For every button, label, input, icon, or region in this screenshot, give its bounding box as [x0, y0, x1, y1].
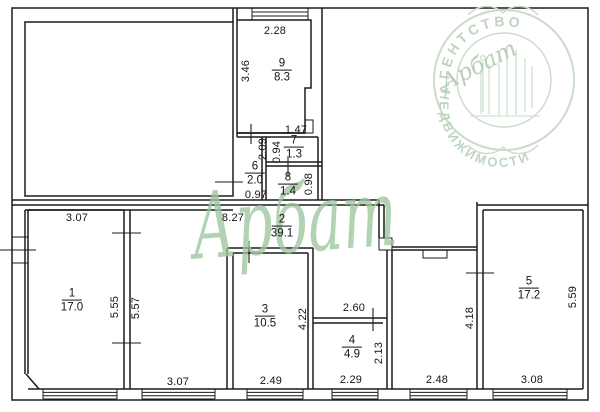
- dim-room3-depth: 4.22: [297, 308, 309, 330]
- dim-room1-width: 3.07: [66, 212, 88, 224]
- room-2-area: 39.1: [271, 227, 293, 240]
- room-6-area: 2.0: [245, 174, 265, 187]
- room-2-label: 2 39.1: [271, 214, 293, 241]
- logo-bottom-text: НЕДВИЖИМОСТИ: [437, 89, 534, 170]
- room-5-label: 5 17.2: [518, 276, 540, 303]
- room-2-number: 2: [272, 214, 292, 227]
- room-5-number: 5: [519, 276, 539, 289]
- room-8-number: 8: [278, 172, 298, 185]
- dim-hall-width: 3.07: [167, 376, 189, 388]
- dim-room6-width: 0.97: [245, 189, 267, 201]
- dim-room3-width: 2.49: [260, 375, 282, 387]
- dim-room7-width: 1.47: [285, 124, 307, 136]
- room-3-area: 10.5: [254, 317, 276, 330]
- room-8-area: 1.4: [278, 185, 298, 198]
- room-8-label: 8 1.4: [278, 172, 298, 199]
- dim-room1-depth: 5.55: [109, 296, 121, 318]
- dim-room5-width: 3.08: [521, 374, 543, 386]
- room-9-number: 9: [272, 58, 292, 71]
- room-4-label: 4 4.9: [342, 335, 362, 362]
- dim-passage-depth: 4.18: [464, 307, 476, 329]
- room-7-area: 1.3: [284, 148, 304, 161]
- room-3-label: 3 10.5: [254, 304, 276, 331]
- room-4-number: 4: [342, 335, 362, 348]
- dim-hall-depth: 5.57: [130, 297, 142, 319]
- room-6-label: 6 2.0: [245, 161, 265, 188]
- room-1-label: 1 17.0: [61, 288, 83, 315]
- room-3-number: 3: [255, 304, 275, 317]
- dim-room7-depth: 0.94: [271, 141, 283, 163]
- dim-room9-width: 2.28: [264, 25, 286, 37]
- floor-plan-drawing: АГЕНТСТВО НЕДВИЖИМОСТИ Арбат Арбат: [0, 0, 600, 412]
- dim-room9-depth: 3.46: [240, 60, 252, 82]
- room-7-number: 7: [284, 135, 304, 148]
- room-6-number: 6: [245, 161, 265, 174]
- room-7-label: 7 1.3: [284, 135, 304, 162]
- dim-room4-top-width: 2.60: [343, 302, 365, 314]
- room-4-area: 4.9: [342, 348, 362, 361]
- dim-passage-width: 2.48: [426, 374, 448, 386]
- dim-room4-width: 2.29: [340, 374, 362, 386]
- room-9-area: 8.3: [272, 71, 292, 84]
- room-1-number: 1: [62, 288, 82, 301]
- room-5-area: 17.2: [518, 289, 540, 302]
- dim-corridor-length: 8.27: [222, 212, 244, 224]
- dim-room8-depth: 0.98: [303, 173, 315, 195]
- floor-plan: АГЕНТСТВО НЕДВИЖИМОСТИ Арбат Арбат 9 8.3…: [0, 0, 600, 412]
- room-1-area: 17.0: [61, 301, 83, 314]
- room-9-label: 9 8.3: [272, 58, 292, 85]
- dim-room4-depth: 2.13: [373, 342, 385, 364]
- agency-logo: АГЕНТСТВО НЕДВИЖИМОСТИ Арбат: [434, 6, 574, 170]
- dim-room5-depth: 5.59: [567, 286, 579, 308]
- dim-room6-depth: 2.09: [257, 138, 269, 160]
